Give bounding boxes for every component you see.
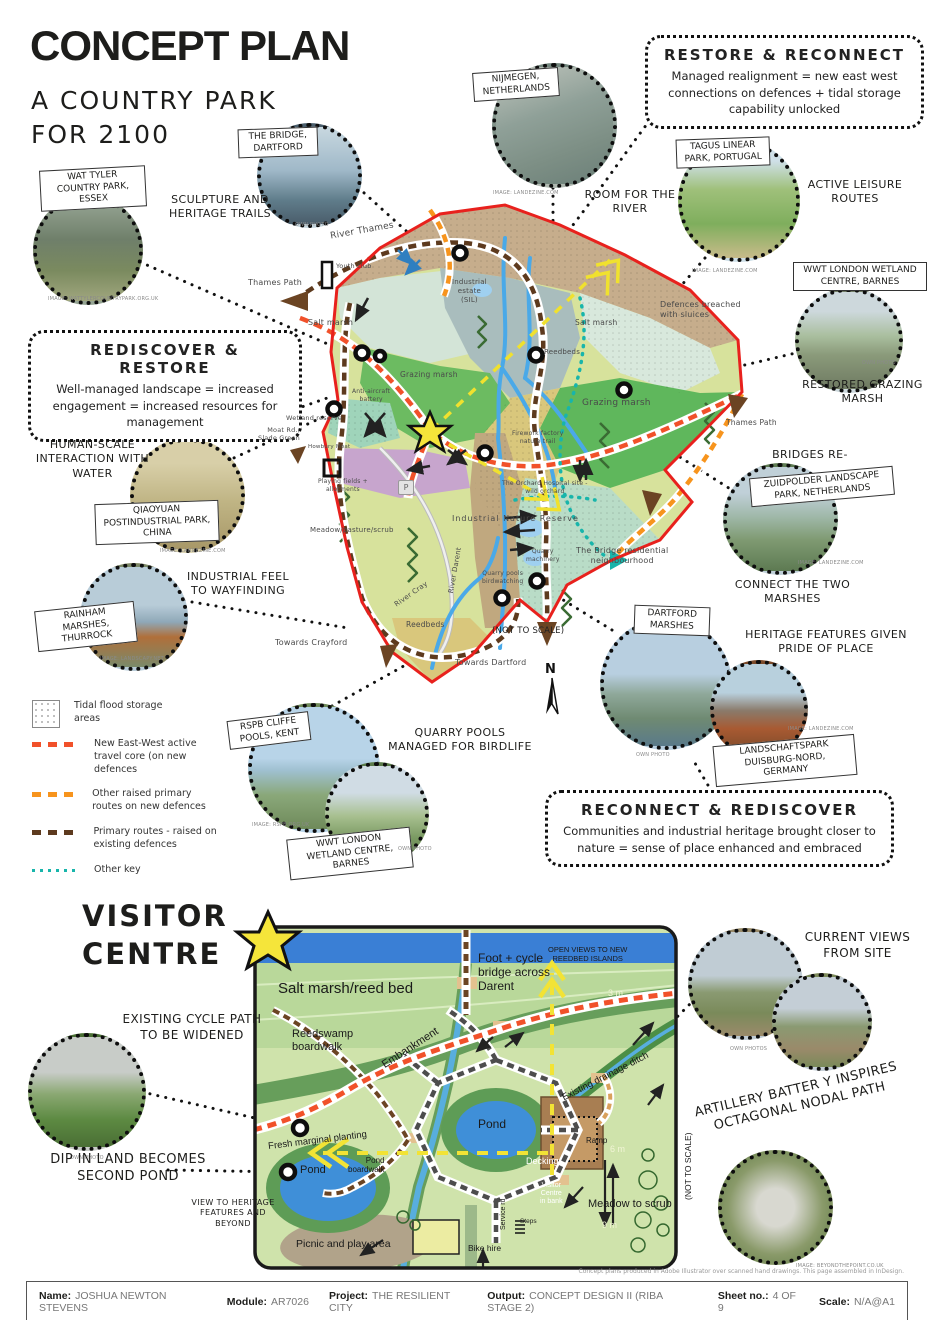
compass-north-label: N [545,662,556,678]
photo-credit-zuidpolder: IMAGE: LANDEZINE.COM [798,560,864,566]
annotation-active-leisure: ACTIVE LEISURE ROUTES [800,178,910,207]
field-label: Project: [329,1290,368,1302]
photo-credit-rainham: IMAGE: LANDSCAPY.NET [100,656,164,662]
photo-label-nijmegen: NIJMEGEN, NETHERLANDS [472,67,560,102]
teal-dot-swatch [32,869,80,872]
annotation-room-for-river: ROOM FOR THE RIVER [570,188,690,217]
photo-credit-wat-tyler: IMAGE: WATTYLERCOUNTRYPARK.ORG.UK [48,296,158,302]
titleblock-scale: Scale:N/A@A1 [819,1296,895,1308]
photo-label-the-bridge: THE BRIDGE, DARTFORD [238,127,319,159]
annotation-view-heritage: VIEW TO HERITAGE FEATURES AND BEYOND [183,1198,283,1229]
photo-label-dartford-marshes: DARTFORD MARSHES [634,605,711,637]
legend-label: New East-West active travel core (on new… [94,738,214,776]
map-label-salt-marsh-right: Salt marsh [575,318,617,327]
field-label: Module: [227,1296,267,1308]
legend: Tidal flood storage areas New East-West … [32,700,222,877]
legend-item-other: Other key [32,864,222,877]
map-label-youth-club: Youth club [336,262,372,270]
photo-current-views-2 [772,973,872,1071]
youth-club-marker [322,262,332,288]
photo-credit-wwt-barnes-right: OWN PHOTO [862,360,896,366]
page-subtitle-line1: A COUNTRY PARK [31,84,277,118]
map-label-moat-rd: Moat Rd., Slade Green [258,426,300,442]
titleblock-module: Module:AR7026 [227,1296,309,1308]
vc-not-to-scale: (NOT TO SCALE) [684,1132,694,1200]
annotation-dip-pond: DIP IN LAND BECOMES SECOND POND [38,1152,218,1186]
photo-credit-wwt-barnes-bottom: OWN PHOTO [398,846,432,852]
vc-label-salt-marsh: Salt marsh/reed bed [278,980,413,997]
map-label-thames-path-left: Thames Path [248,278,302,288]
map-label-industrial-estate: Industrial estate (SIL) [452,278,487,304]
photo-credit-nijmegen: IMAGE: LANDEZINE.COM [493,190,559,196]
vc-label-reedswamp: Reedswamp boardwalk [292,1028,353,1053]
annotation-industrial-wayfinding: INDUSTRIAL FEEL TO WAYFINDING [178,570,298,599]
concept-box-body: Well-managed landscape = increased engag… [45,381,285,431]
map-label-playing-fields: Playing fields + allotments [318,478,368,493]
photo-credit-current-views: OWN PHOTOS [730,1046,767,1052]
map-label-firework-factory: Firework factory nature trail [512,430,563,445]
photo-label-wwt-barnes-right: WWT LONDON WETLAND CENTRE, BARNES [793,262,927,291]
concept-box-title: REDISCOVER & RESTORE [45,341,285,377]
field-label: Scale: [819,1296,850,1308]
map-label-reedbeds-mid: Reedbeds [544,348,580,357]
map-label-parking: P [398,480,414,495]
page-title: CONCEPT PLAN [30,22,349,70]
annotation-sculpture: SCULPTURE AND HERITAGE TRAILS [155,193,285,222]
concept-box-reconnect-rediscover: RECONNECT & REDISCOVER Communities and i… [545,790,894,867]
annotation-bridges-re: BRIDGES RE- [745,448,875,462]
orange-dash-swatch [32,792,78,797]
legend-item-orange-route: Other raised primary routes on new defen… [32,788,222,814]
map-label-salt-marsh-left: Salt marsh [308,318,353,328]
annotation-cycle-widened: EXISTING CYCLE PATH TO BE WIDENED [122,1012,262,1043]
map-label-bridge-residential: The Bridge residential neighbourhood [576,546,668,566]
concept-box-title: RECONNECT & REDISCOVER [562,801,877,819]
vc-label-decking: Decking [526,1156,559,1166]
brown-dash-swatch [32,830,79,835]
legend-label: Tidal flood storage areas [74,700,164,726]
field-label: Sheet no.: [718,1290,769,1302]
vc-label-steps: Steps [520,1218,537,1225]
map-label-grazing-marsh-left: Grazing marsh [400,370,458,379]
map-label-reedbeds-bottom: Reedbeds [406,620,445,629]
vc-label-6m: 6 m [610,1144,625,1154]
concept-box-title: RESTORE & RECONNECT [662,46,907,64]
legend-label: Other key [94,864,141,877]
map-label-defences-breached: Defences breached with sluices [660,300,741,320]
visitor-centre-title-line1: VISITOR [82,898,228,936]
vc-label-meadow-scrub: Meadow to scrub [588,1198,672,1211]
annotation-current-views: CURRENT VIEWS FROM SITE [785,930,930,961]
vc-label-open-views: OPEN VIEWS TO NEW REEDBED ISLANDS [548,946,627,963]
concept-plan-poster: CONCEPT PLAN A COUNTRY PARK FOR 2100 RES… [0,0,932,1320]
vc-label-visitor-centre-in-bank: Visitor Centre in bank [540,1182,563,1206]
titleblock-project: Project:THE RESILIENT CITY [329,1290,467,1314]
map-label-quarry-pools-bw: Quarry pools birdwatching [482,570,523,585]
photo-wat-tyler [33,195,143,305]
vc-label-bike-hire: Bike hire [468,1244,501,1254]
vc-label-3m: 3 m [608,988,623,998]
vc-label-pond-left: Pond [300,1164,326,1177]
photo-label-wat-tyler: WAT TYLER COUNTRY PARK, ESSEX [39,165,147,212]
annotation-quarry-pools: QUARRY POOLS MANAGED FOR BIRDLIFE [385,726,535,755]
production-credit: Concept plans produced in Adobe Illustra… [579,1268,905,1275]
map-label-anti-aircraft: Anti-aircraft battery [352,388,390,403]
field-label: Name: [39,1290,71,1302]
map-not-to-scale: (NOT TO SCALE) [492,626,564,637]
photo-credit-dartford-marshes: OWN PHOTO [636,752,670,758]
photo-label-tagus: TAGUS LINEAR PARK, PORTUGAL [676,136,771,169]
vc-label-foot-cycle-bridge: Foot + cycle bridge across Darent [478,952,550,993]
legend-label: Primary routes - raised on existing defe… [93,826,222,852]
field-label: Output: [487,1290,525,1302]
legend-item-brown-route: Primary routes - raised on existing defe… [32,826,222,852]
vc-label-ramp: Ramp [586,1136,607,1145]
legend-item-tidal: Tidal flood storage areas [32,700,222,728]
field-value: AR7026 [271,1296,309,1308]
titleblock-output: Output:CONCEPT DESIGN II (RIBA STAGE 2) [487,1290,698,1314]
field-value: N/A@A1 [854,1296,895,1308]
photo-credit-tagus: IMAGE: LANDEZINE.COM [692,268,758,274]
map-label-wetland-reserve: Wetland reserve [286,414,342,422]
visitor-centre-title-line2: CENTRE [82,936,228,974]
annotation-restored-marsh: RESTORED GRAZING MARSH [795,378,930,407]
map-label-quarry-machinery: Quarry machinery [526,548,560,563]
vc-label-service-rd: Service rd [500,1198,508,1230]
legend-label: Other raised primary routes on new defen… [92,788,222,814]
vc-label-picnic: Picnic and play area [296,1238,391,1250]
title-block: Name:JOSHUA NEWTON STEVENS Module:AR7026… [26,1281,908,1320]
vc-label-pond-boardwalk: Pond boardwalk [348,1156,384,1174]
photo-credit-rspb-cliffe: IMAGE: RSPB.ORG.UK [252,822,310,828]
concept-box-body: Communities and industrial heritage brou… [562,823,877,856]
photo-credit-the-bridge: OWN PHOTO [295,222,329,228]
annotation-connect-marshes: CONNECT THE TWO MARSHES [705,578,880,607]
map-label-meadow: Meadow/pasture/scrub [310,526,394,535]
red-dash-swatch [32,742,80,747]
concept-box-body: Managed realignment = new east west conn… [662,68,907,118]
tidal-flood-swatch [32,700,60,728]
titleblock-sheet: Sheet no.:4 OF 9 [718,1290,799,1314]
photo-dartford-marshes [600,618,732,750]
map-label-towards-dartford: Towards Dartford [455,658,526,668]
annotation-human-scale: HUMAN-SCALE INTERACTION WITH WATER [35,438,150,481]
visitor-centre-title: VISITOR CENTRE [82,898,228,973]
map-label-howbury-moat: Howbury Moat [308,444,350,451]
photo-cycle-path [28,1033,146,1151]
photo-credit-duisburg: IMAGE: LANDEZINE.COM [788,726,854,732]
titleblock-name: Name:JOSHUA NEWTON STEVENS [39,1290,207,1314]
map-label-industrial-nature-reserve: Industrial Nature Reserve [452,514,579,524]
photo-credit-qiaoyuan: IMAGE: LANDEZINE.COM [160,548,226,554]
vc-label-pond-centre: Pond [478,1118,506,1132]
concept-box-restore-reconnect: RESTORE & RECONNECT Managed realignment … [645,35,924,129]
map-label-orchard-hospital: The Orchard Hospital site - wild orchard [502,480,588,495]
map-label-towards-crayford: Towards Crayford [275,638,347,648]
vc-label-9m: 9 m [602,1220,617,1230]
map-label-thames-path-right: Thames Path [726,418,777,427]
photo-label-qiaoyuan: QIAOYUAN POSTINDUSTRIAL PARK, CHINA [94,500,219,545]
photo-artillery-battery [718,1150,833,1265]
legend-item-red-route: New East-West active travel core (on new… [32,738,222,776]
annotation-heritage-pride: HERITAGE FEATURES GIVEN PRIDE OF PLACE [742,628,910,657]
map-label-grazing-marsh-right: Grazing marsh [582,398,651,409]
visitor-centre-map [253,925,678,1270]
